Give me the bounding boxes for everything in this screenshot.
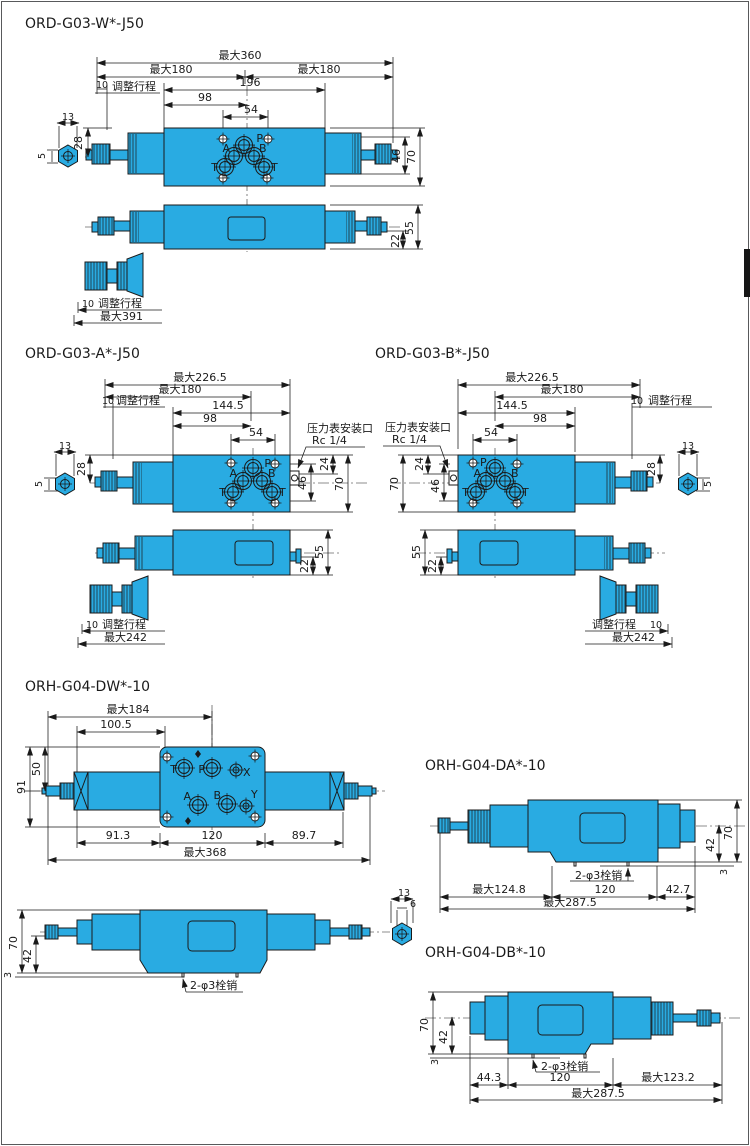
svg-text:3: 3 [719,869,730,875]
port-label-b: B [259,142,267,155]
knob-10: 10 [86,620,98,631]
svg-text:54: 54 [244,103,258,116]
dimension-drawings: ORD-G03-W*-J50 P A [0,0,750,1146]
svg-text:46: 46 [390,149,403,163]
svg-text:28: 28 [72,136,85,150]
svg-text:调整行程: 调整行程 [112,79,156,93]
svg-text:13: 13 [398,888,410,899]
svg-text:22: 22 [389,234,402,248]
port-label-t1: T [210,161,218,174]
svg-text:最大287.5: 最大287.5 [543,895,597,909]
svg-text:10: 10 [96,80,108,91]
knob-10: 10 [82,299,94,310]
adjuster-nut [490,805,528,847]
right-wing [265,772,330,810]
svg-text:70: 70 [405,150,418,164]
svg-text:98: 98 [198,91,212,104]
dim-adjust-stroke: 10调整行程 [95,79,160,93]
port-label-t2: T [521,486,529,499]
knob-stroke-label: 调整行程 [102,617,146,631]
svg-text:70: 70 [722,826,735,840]
svg-text:最大180: 最大180 [150,62,193,76]
svg-text:3: 3 [430,1059,441,1065]
adjuster-hex-detail [679,473,698,495]
svg-text:Rc 1/4: Rc 1/4 [312,434,347,447]
left-wing [88,772,160,810]
svg-text:42: 42 [21,949,34,963]
port-label-t: T [169,763,177,776]
port-label-b: B [511,467,519,480]
svg-text:54: 54 [484,426,498,439]
port-label-b: B [268,467,276,480]
svg-text:5: 5 [37,153,48,159]
dim-3: 3 [430,1059,441,1065]
svg-text:13: 13 [59,441,71,452]
svg-text:最大184: 最大184 [107,702,150,716]
svg-text:55: 55 [313,545,326,559]
port-label-p: P [198,763,205,776]
svg-text:42: 42 [437,1030,450,1044]
svg-text:最大180: 最大180 [298,62,341,76]
svg-text:最大360: 最大360 [219,48,262,62]
svg-text:89.7: 89.7 [292,829,317,842]
svg-text:46: 46 [296,476,309,490]
svg-text:24: 24 [413,457,426,471]
catalog-page: ORD-G03-W*-J50 P A [0,0,750,1146]
port-label-a: A [222,142,230,155]
port-label-t1: T [218,486,226,499]
port-label-t1: T [461,486,469,499]
svg-text:70: 70 [388,477,401,491]
dim-3: 3 [3,972,14,978]
dim-24: 24 [413,455,428,474]
svg-text:91: 91 [15,780,28,794]
port-label-t2: T [270,161,278,174]
dim-3: 3 [719,869,730,875]
section-title: ORH-G04-DW*-10 [25,679,150,695]
knob-max-travel: 最大242 [612,630,655,644]
svg-text:2-φ3栓销: 2-φ3栓销 [190,978,237,992]
knob-stroke-label: 调整行程 [592,617,636,631]
svg-text:54: 54 [249,426,263,439]
knob-max-travel: 最大242 [104,630,147,644]
svg-text:Rc 1/4: Rc 1/4 [392,433,427,446]
svg-text:最大123.2: 最大123.2 [641,1070,695,1084]
port-label-y: Y [250,788,258,801]
svg-text:5: 5 [703,481,714,487]
mounting-plate [160,747,265,827]
dim-22: 22 [298,557,313,575]
svg-text:最大226.5: 最大226.5 [173,370,227,384]
svg-text:调整行程: 调整行程 [648,393,692,407]
svg-text:50: 50 [30,762,43,776]
svg-text:24: 24 [318,457,331,471]
dim-24: 24 [318,455,333,474]
svg-text:压力表安装口: 压力表安装口 [307,421,373,435]
port-label-a: A [473,467,481,480]
svg-text:70: 70 [418,1018,431,1032]
svg-text:98: 98 [203,412,217,425]
svg-text:144.5: 144.5 [496,399,528,412]
port-label-x: X [243,766,251,779]
svg-text:46: 46 [429,479,442,493]
svg-text:42: 42 [704,838,717,852]
svg-text:91.3: 91.3 [106,829,131,842]
svg-text:最大180: 最大180 [541,382,584,396]
port-label-a: A [229,467,237,480]
svg-text:55: 55 [410,545,423,559]
page-edge-tab [744,249,750,297]
svg-text:100.5: 100.5 [100,718,132,731]
section-title: ORD-G03-A*-J50 [25,346,140,362]
svg-text:70: 70 [7,936,20,950]
svg-text:13: 13 [682,441,694,452]
svg-text:5: 5 [34,481,45,487]
svg-text:120: 120 [550,1071,571,1084]
pin-callout: 2-φ3栓销 [183,978,243,992]
adjuster-nut [613,997,651,1039]
svg-text:最大368: 最大368 [184,845,227,859]
svg-text:70: 70 [333,477,346,491]
dim-22: 22 [426,557,441,575]
svg-text:最大180: 最大180 [159,382,202,396]
port-label-b: B [213,789,221,802]
dim-adjust-stroke: 10调整行程 [102,393,165,407]
knob-10: 10 [650,620,662,631]
svg-text:10: 10 [631,396,643,407]
svg-text:最大287.5: 最大287.5 [571,1086,625,1100]
svg-text:22: 22 [298,559,311,573]
svg-text:28: 28 [645,462,658,476]
svg-text:196: 196 [240,76,261,89]
section-title: ORH-G04-DB*-10 [425,945,546,961]
section-title: ORH-G04-DA*-10 [425,758,546,774]
svg-text:2-φ3栓销: 2-φ3栓销 [575,868,622,882]
port-label-a: A [183,790,191,803]
svg-text:120: 120 [202,829,223,842]
svg-text:最大124.8: 最大124.8 [472,882,526,896]
svg-text:压力表安装口: 压力表安装口 [385,420,451,434]
svg-text:55: 55 [403,221,416,235]
svg-text:44.3: 44.3 [477,1071,502,1084]
section-title: ORD-G03-W*-J50 [25,16,144,32]
svg-text:98: 98 [533,412,547,425]
svg-text:6: 6 [410,899,416,910]
section-title: ORD-G03-B*-J50 [375,346,490,362]
adjuster-hex-detail [56,473,75,495]
valve-body-side [458,530,575,575]
port-label-p: P [480,456,487,469]
svg-text:3: 3 [3,972,14,978]
valve-body-side [164,205,325,249]
svg-text:13: 13 [62,112,74,123]
svg-text:42.7: 42.7 [666,883,691,896]
svg-text:10: 10 [102,396,114,407]
svg-text:120: 120 [595,883,616,896]
knob-stroke-label: 调整行程 [98,296,142,310]
valve-body-side [173,530,290,575]
svg-text:22: 22 [426,559,439,573]
port-label-t2: T [278,486,286,499]
knob-max-travel: 最大391 [100,309,143,323]
svg-text:调整行程: 调整行程 [116,393,160,407]
svg-text:144.5: 144.5 [212,399,244,412]
valve-body-side [140,910,267,973]
svg-text:最大226.5: 最大226.5 [505,370,559,384]
svg-text:28: 28 [75,462,88,476]
